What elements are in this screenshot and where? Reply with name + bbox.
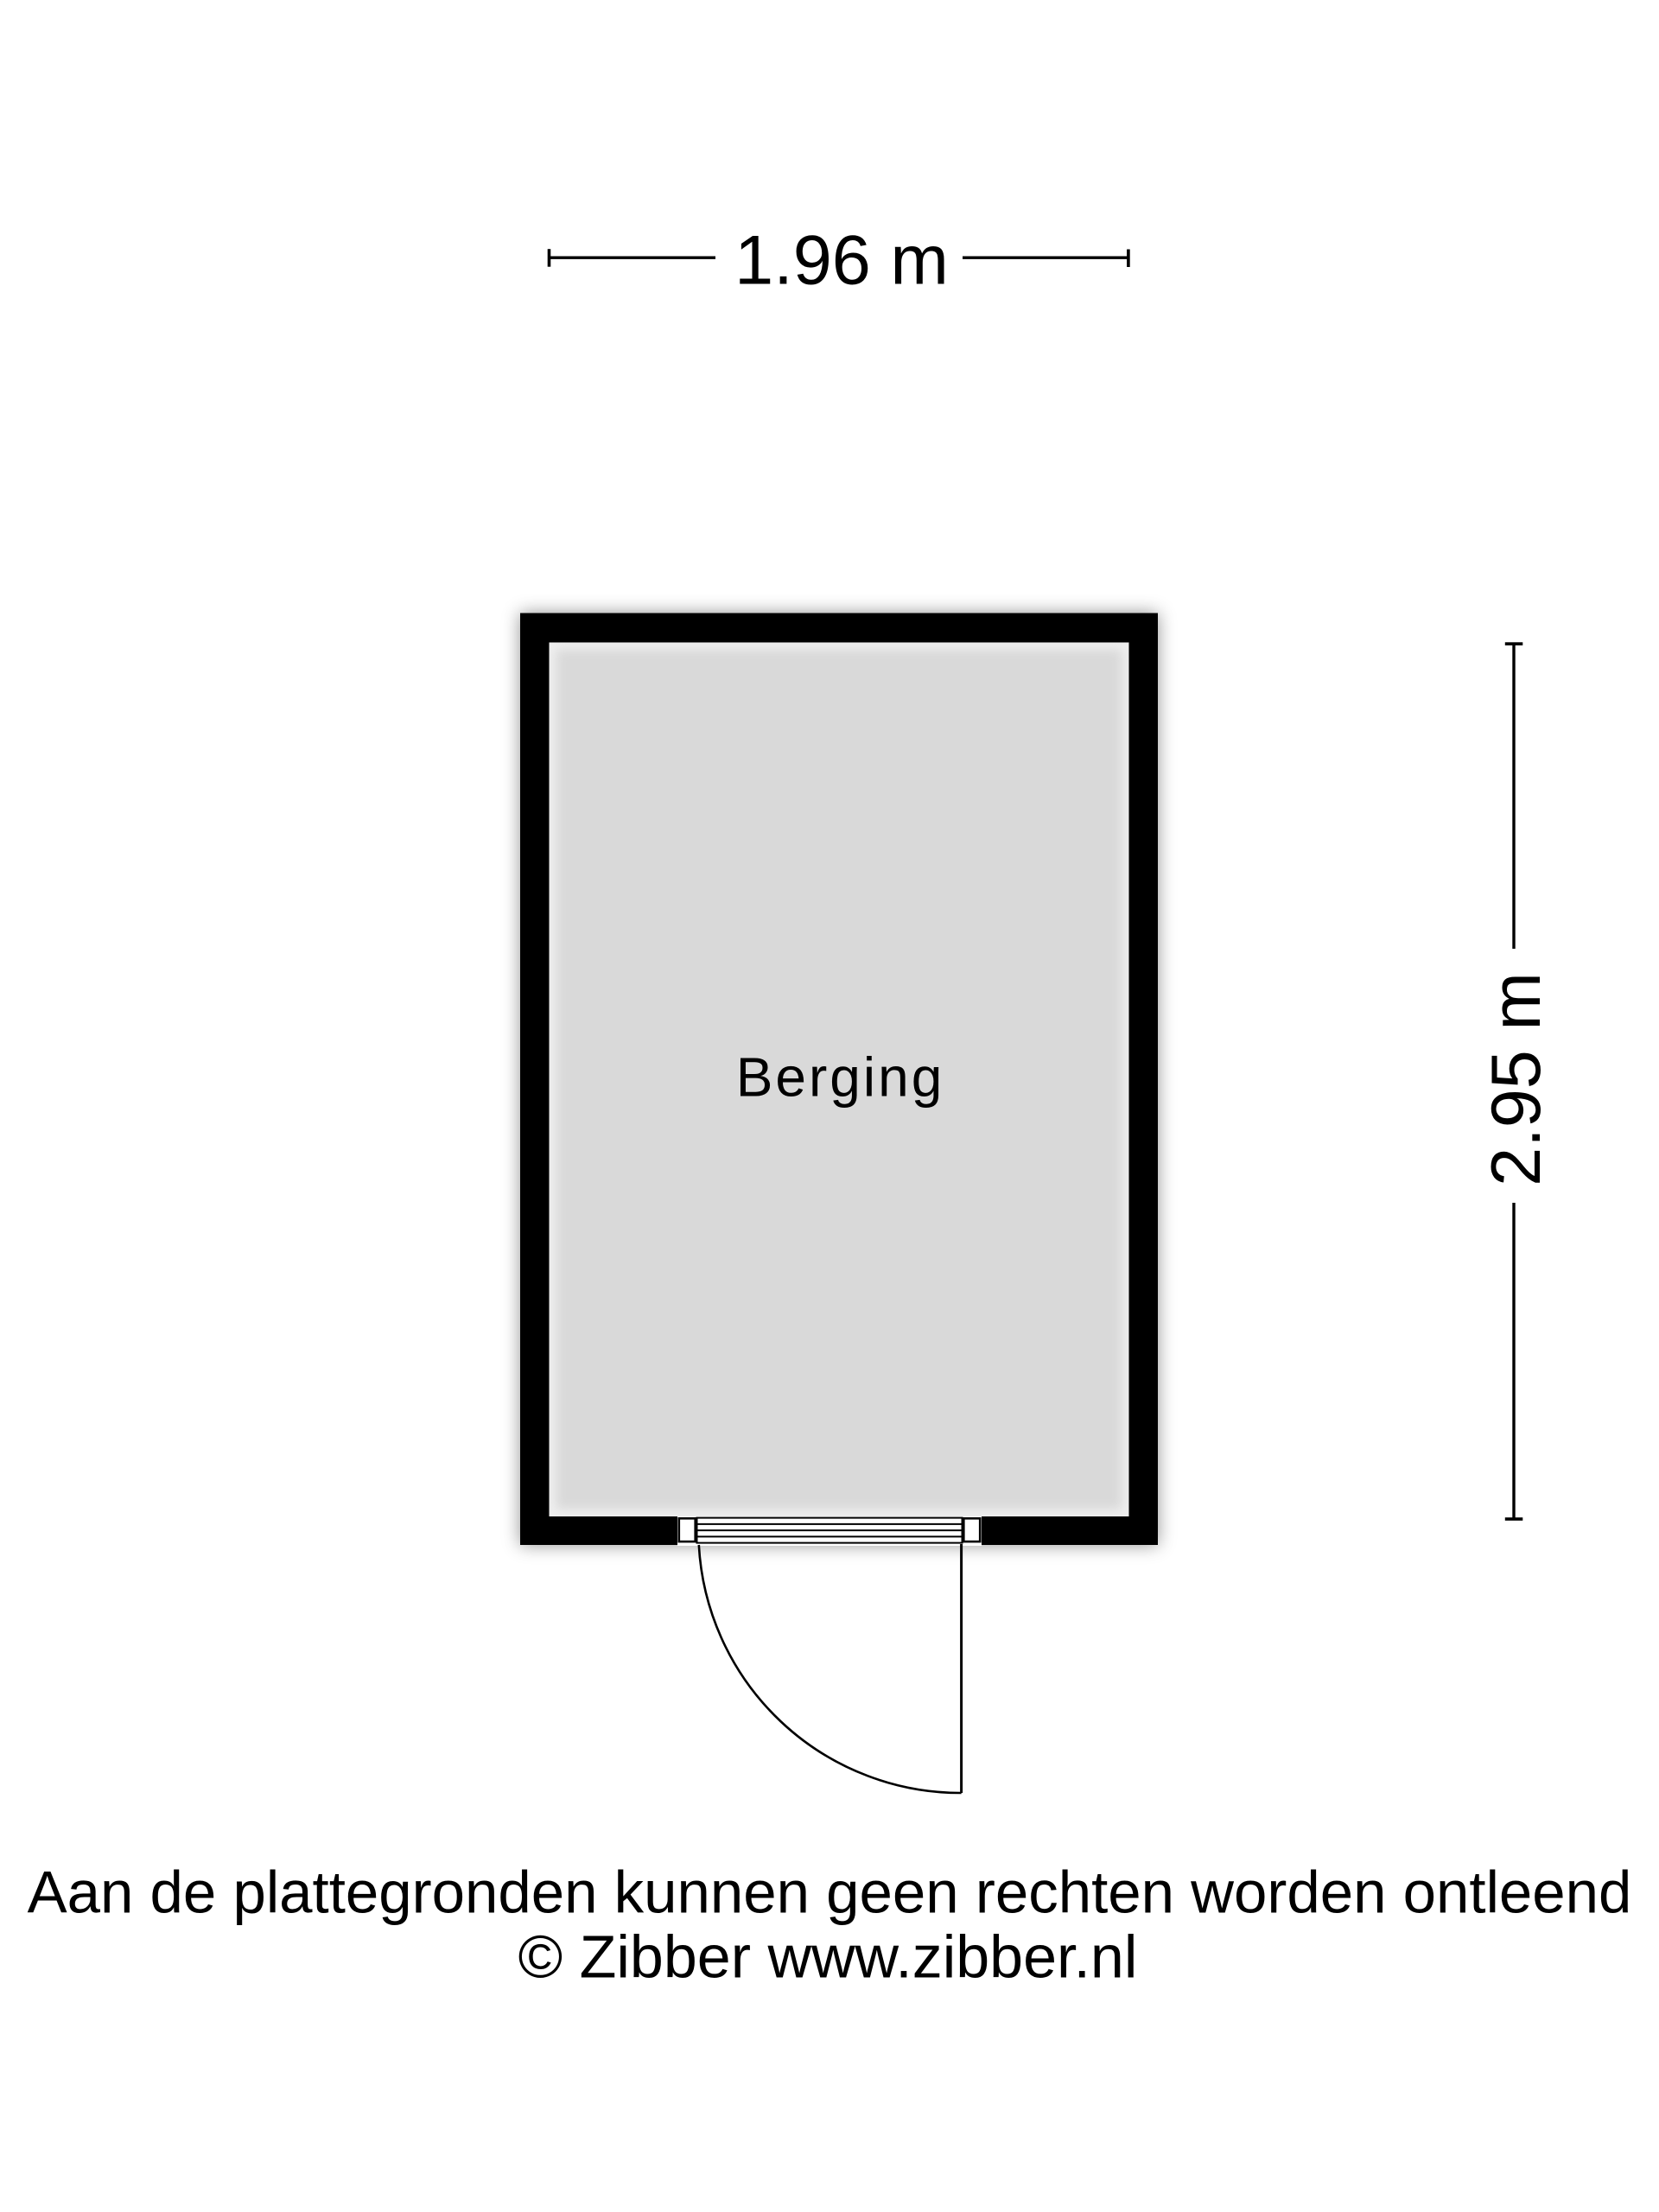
svg-text:1.96 m: 1.96 m bbox=[734, 221, 949, 299]
svg-text:© Zibber www.zibber.nl: © Zibber www.zibber.nl bbox=[518, 1923, 1138, 1991]
svg-text:Aan de plattegronden kunnen ge: Aan de plattegronden kunnen geen rechten… bbox=[28, 1859, 1632, 1926]
svg-text:Berging: Berging bbox=[736, 1046, 945, 1109]
svg-text:2.95 m: 2.95 m bbox=[1478, 972, 1555, 1186]
